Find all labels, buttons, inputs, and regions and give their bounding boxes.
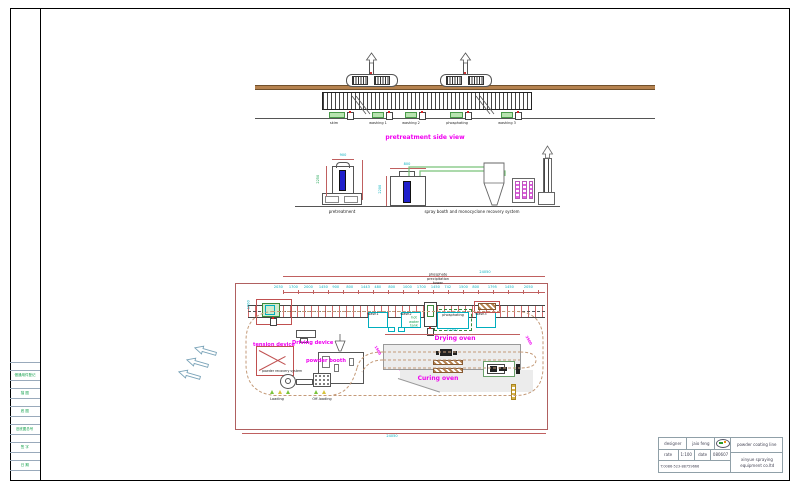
date-value: 080607 [713,453,728,458]
stack-arrow-icon [461,53,471,63]
flow-arrow-icon [178,344,217,382]
conveyor-loop-path [246,312,543,396]
company-logo-icon [716,439,730,448]
designer-value-cell: jaio feng [687,438,715,450]
date-label: date [698,453,707,458]
company-name-line1: xinyue spraying [741,458,773,463]
date-label-cell: date [695,450,711,461]
company-name-line2: equipment co.ltd [740,464,774,469]
designer-label-cell: designer [659,438,687,450]
rate-label-cell: rate [659,450,679,461]
logo-cell [715,438,731,450]
designer-value: jaio feng [692,441,709,446]
ladder-icon [352,96,494,114]
designer-label: designer [664,441,681,446]
phone-number: T:0086-523-88759666 [659,465,699,469]
phone-cell: T:0086-523-88759666 [659,461,731,473]
company-cell: xinyue spraying equipment co.ltd [731,453,783,473]
stack-arrow-icon [367,53,377,63]
rate-value-cell: 1:100 [679,450,695,461]
linework-overlay [0,0,800,493]
drawing-canvas: 借通用件登记 描 图 底 图 旧底图总号 签 字 日 期 skim washin… [0,0,800,493]
title-block: designer jaio feng powder coating line r… [658,437,783,473]
rate-label: rate [664,453,672,458]
cyclone-icon [484,163,504,205]
stack-arrow-icon [543,146,553,158]
hopper-icon [335,334,345,351]
rate-value: 1:100 [681,453,693,458]
project-name: powder coating line [737,443,777,448]
project-cell: powder coating line [731,438,783,453]
date-value-cell: 080607 [711,450,731,461]
